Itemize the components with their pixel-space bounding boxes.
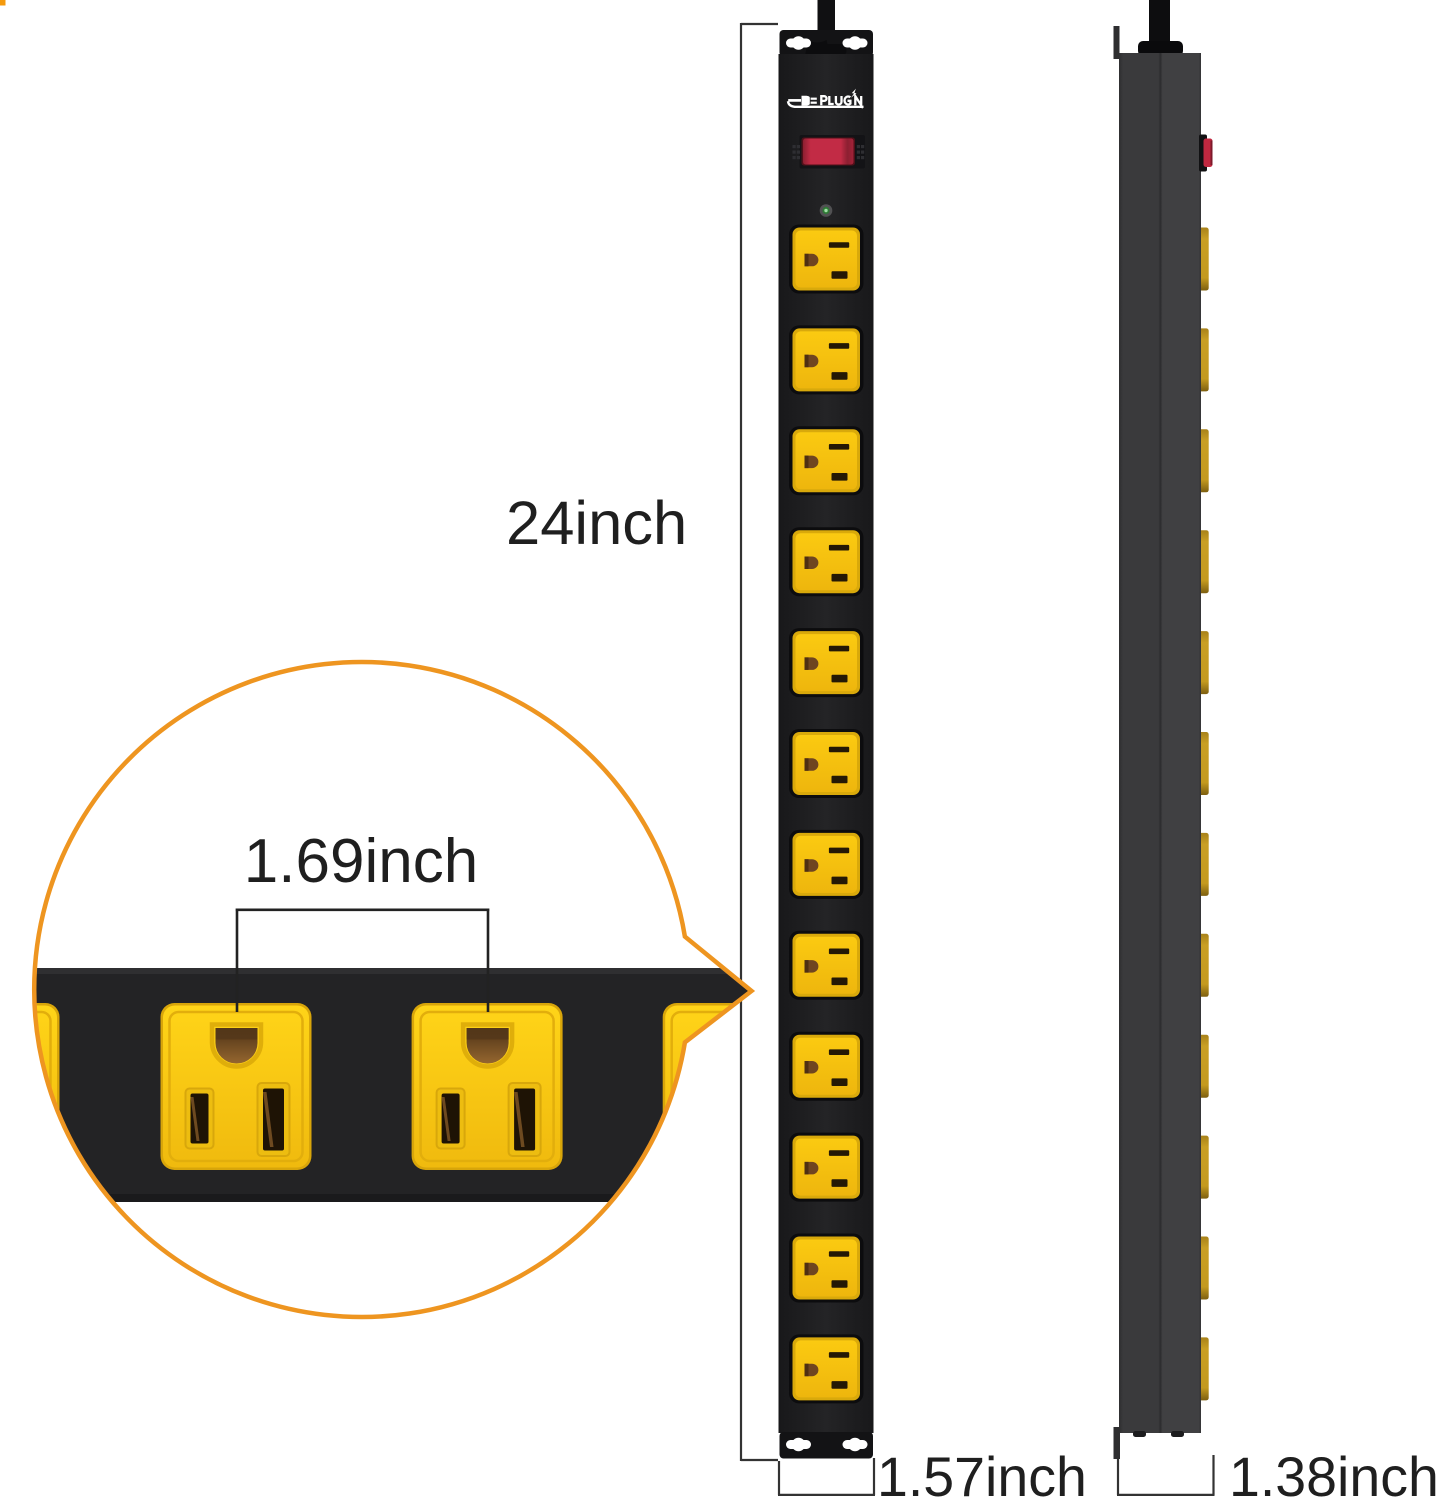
svg-text:1.69inch: 1.69inch xyxy=(244,827,478,896)
svg-text:24inch: 24inch xyxy=(506,489,687,558)
svg-text:1.38inch: 1.38inch xyxy=(1229,1446,1439,1500)
svg-text:1.57inch: 1.57inch xyxy=(877,1446,1087,1500)
